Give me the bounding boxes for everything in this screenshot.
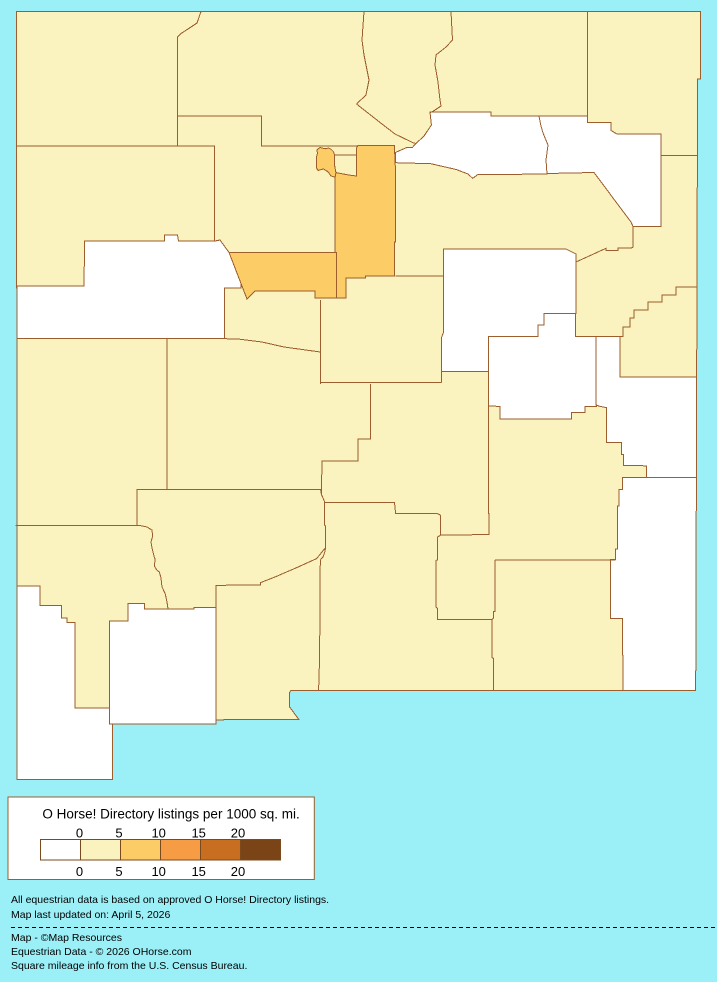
svg-text:Equestrian Data - © 2026 OHors: Equestrian Data - © 2026 OHorse.com [11, 946, 192, 958]
svg-text:15: 15 [191, 825, 205, 840]
svg-text:15: 15 [191, 864, 205, 879]
svg-text:Map last updated on: April 5,: Map last updated on: April 5, 2026 [11, 909, 171, 921]
svg-text:O Horse! Directory listings pe: O Horse! Directory listings per 1000 sq.… [42, 807, 299, 822]
svg-text:0: 0 [76, 864, 83, 879]
svg-text:20: 20 [231, 825, 245, 840]
svg-text:All equestrian data is based o: All equestrian data is based on approved… [11, 894, 329, 906]
svg-text:5: 5 [115, 864, 122, 879]
svg-text:10: 10 [151, 864, 165, 879]
svg-text:0: 0 [76, 825, 83, 840]
svg-text:Map - ©Map Resources: Map - ©Map Resources [11, 932, 122, 944]
svg-text:10: 10 [151, 825, 165, 840]
svg-text:20: 20 [231, 864, 245, 879]
svg-text:Square mileage info from the U: Square mileage info from the U.S. Census… [11, 960, 247, 972]
svg-text:5: 5 [115, 825, 122, 840]
